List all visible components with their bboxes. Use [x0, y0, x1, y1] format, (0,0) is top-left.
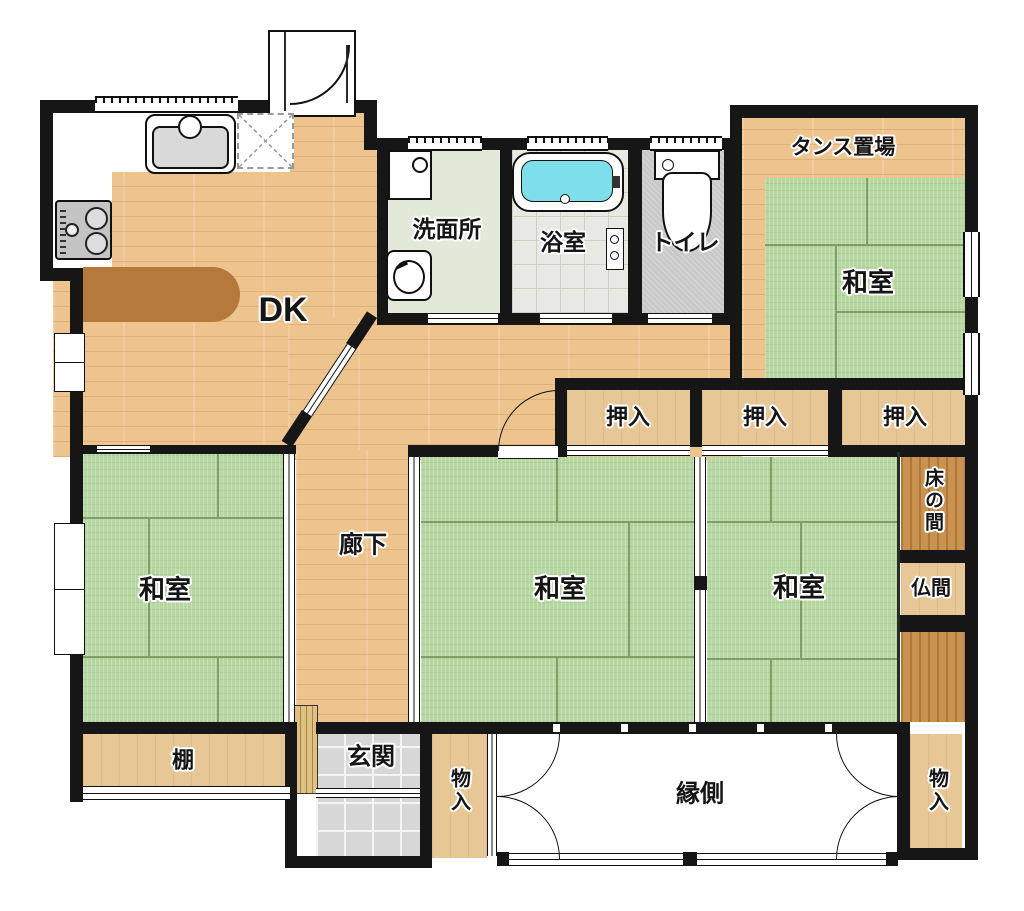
mat-line: [217, 452, 219, 517]
burner-knob-icon: [65, 223, 79, 237]
mat-line: [835, 244, 837, 380]
wash-basin: [386, 250, 432, 301]
mat-line: [217, 656, 219, 722]
bath-faucet-icon: [612, 176, 620, 188]
sliding-door: [567, 445, 690, 456]
wall: [70, 785, 83, 802]
sliding-door: [408, 457, 420, 722]
door-gap: [757, 724, 764, 732]
back-door-jamb: [284, 32, 286, 111]
gas-stove: [55, 200, 112, 260]
right-closet-floor: [901, 632, 965, 722]
wall: [897, 550, 965, 563]
refrigerator-space: [237, 113, 294, 169]
window: [527, 136, 608, 151]
door-gap: [553, 724, 560, 732]
shower-knob-icon: [610, 251, 619, 260]
mat-line: [83, 517, 287, 519]
door-gap: [825, 724, 832, 732]
wall: [500, 150, 512, 313]
sliding-door: [540, 313, 612, 324]
wall: [694, 576, 707, 590]
shower-knob-icon: [610, 235, 619, 244]
grate-lines: [60, 206, 66, 254]
floor-plan: DK 洗面所 浴室 トイレ タンス置場 和室 押入 押入 押入 床の間 仏間 廊…: [0, 0, 1024, 911]
burner-icon: [85, 207, 108, 230]
room-label-tansu: タンス置場: [791, 137, 896, 159]
mat-line: [835, 311, 965, 313]
wall: [730, 105, 742, 390]
bathtub: [512, 152, 624, 212]
room-label-tana: 棚: [172, 748, 194, 771]
shower-fixture: [606, 228, 624, 270]
window-hatch: [650, 138, 722, 143]
wall: [965, 105, 978, 722]
mat-line: [421, 521, 694, 523]
window: [408, 136, 482, 151]
window: [54, 333, 85, 392]
window: [83, 786, 290, 800]
sliding-door: [97, 445, 150, 453]
x-mark-icon: [239, 115, 292, 167]
mat-line: [707, 521, 897, 523]
wall: [40, 100, 53, 281]
wall: [420, 722, 432, 868]
washer-dial-icon: [412, 157, 428, 173]
room-label-dk: DK: [258, 293, 307, 329]
wall: [628, 150, 642, 313]
drain-icon: [560, 194, 570, 204]
window: [54, 523, 85, 655]
wall: [285, 856, 432, 868]
genkan-step-line: [316, 788, 420, 798]
room-label-toilet: トイレ: [651, 230, 720, 254]
room-label-washitsu-sw: 和室: [139, 576, 191, 603]
wall: [730, 105, 978, 118]
window-hatch: [527, 138, 608, 143]
room-label-oshiire-1: 押入: [606, 405, 650, 428]
room-label-butsuma: 仏間: [911, 579, 951, 600]
window: [963, 333, 980, 395]
kitchen-counter: [83, 267, 240, 322]
room-label-washroom: 洗面所: [413, 217, 482, 241]
window-hatch: [408, 138, 482, 143]
sliding-door: [428, 313, 498, 324]
wall: [408, 445, 498, 457]
wall: [965, 722, 978, 860]
wall: [690, 390, 702, 447]
room-label-genkan: 玄関: [347, 744, 395, 769]
sliding-door: [487, 734, 497, 856]
room-label-corridor: 廊下: [339, 532, 387, 557]
room-label-washitsu-s: 和室: [534, 575, 586, 602]
door-opening: [648, 313, 712, 324]
corridor-floor: [296, 450, 413, 730]
wall: [377, 150, 388, 325]
room-label-engawa: 縁側: [676, 781, 724, 806]
wall: [421, 722, 910, 734]
room-label-washitsu-ne: 和室: [842, 269, 894, 296]
room-label-bath: 浴室: [540, 230, 586, 254]
window: [650, 136, 722, 151]
wall: [838, 445, 972, 457]
room-label-washitsu-se: 和室: [773, 574, 825, 601]
burner-icon: [85, 232, 108, 255]
mat-line: [765, 244, 965, 246]
mat-line: [707, 658, 897, 660]
room-label-monoire-right: 物入: [926, 768, 947, 814]
mat-line: [556, 457, 558, 521]
door-leaf: [346, 45, 348, 103]
window: [963, 232, 980, 297]
door-gap: [621, 724, 628, 732]
wall: [364, 100, 377, 150]
wall: [897, 848, 978, 860]
door-gap: [689, 724, 696, 732]
room-label-tokonoma: 床の間: [922, 468, 942, 534]
mat-line: [556, 656, 558, 722]
room-label-oshiire-2: 押入: [743, 405, 787, 428]
faucet-icon: [178, 115, 202, 139]
room-label-monoire-center: 物入: [448, 768, 469, 814]
mat-line: [628, 521, 630, 656]
sliding-door: [283, 454, 295, 722]
mat-line: [770, 457, 772, 521]
wall: [897, 615, 965, 632]
mat-line: [83, 656, 287, 658]
flush-button-icon: [662, 159, 674, 171]
sliding-door: [702, 445, 828, 456]
wall: [555, 378, 972, 390]
window-hatch: [95, 98, 238, 103]
wall: [683, 852, 697, 866]
washing-machine: [388, 150, 432, 200]
wall: [316, 722, 432, 734]
wall: [70, 722, 296, 734]
mat-line: [866, 178, 868, 244]
mat-line: [770, 658, 772, 722]
window: [95, 96, 238, 113]
room-label-oshiire-3: 押入: [883, 405, 927, 428]
wall: [897, 452, 900, 722]
